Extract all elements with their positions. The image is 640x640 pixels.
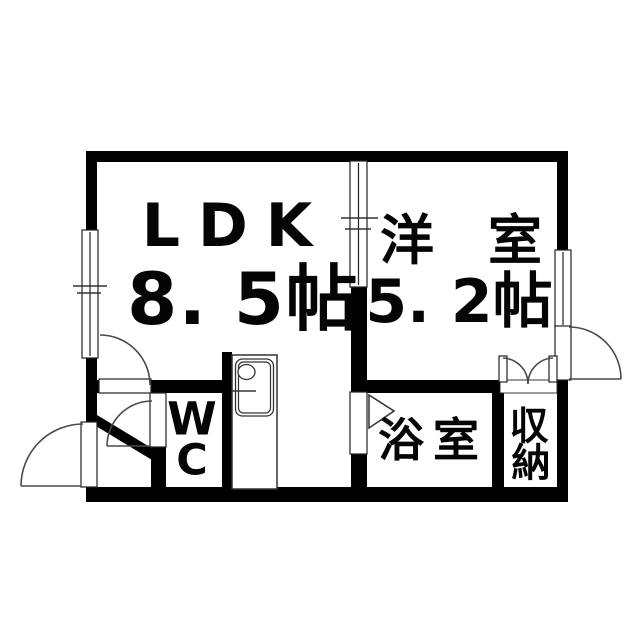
- entrance-door-leaf: [81, 422, 97, 487]
- wall-partition-corridor-bath: [351, 453, 367, 493]
- wall-top: [86, 151, 568, 162]
- ldk-door-leaf: [99, 379, 151, 393]
- room-label-ldk-size: 8. 5帖: [127, 263, 359, 335]
- entrance-door-arc: [21, 424, 83, 486]
- wall-kitchen: [222, 352, 232, 489]
- fixtures: [232, 355, 394, 489]
- wc-door-leaf: [150, 393, 166, 447]
- room-label-bath: 浴室: [378, 417, 488, 463]
- closet-door-leaf-left: [499, 356, 507, 382]
- wall-left-upper: [86, 151, 97, 231]
- closet-door-leaf-right: [549, 356, 557, 382]
- wall-left-middle: [86, 357, 97, 423]
- kitchen-faucet-icon: [238, 365, 255, 380]
- wall-right-upper: [557, 151, 568, 251]
- balcony-door-arc: [569, 327, 621, 379]
- room-label-storage-char2: 納: [511, 445, 550, 484]
- floorplan: LDK 8. 5帖 洋 室 5. 2帖 W C 浴室 収 納: [0, 0, 640, 640]
- ldk-door-arc: [100, 335, 150, 385]
- room-label-western-size: 5. 2帖: [365, 272, 552, 332]
- room-label-western-name: 洋 室: [380, 214, 542, 268]
- room-label-wc-char-c: C: [176, 440, 208, 483]
- wall-bath-storage-divider: [492, 393, 504, 489]
- bath-door-leaf: [350, 392, 367, 454]
- wall-right-lower: [557, 379, 568, 502]
- room-label-ldk-name: LDK: [142, 196, 331, 256]
